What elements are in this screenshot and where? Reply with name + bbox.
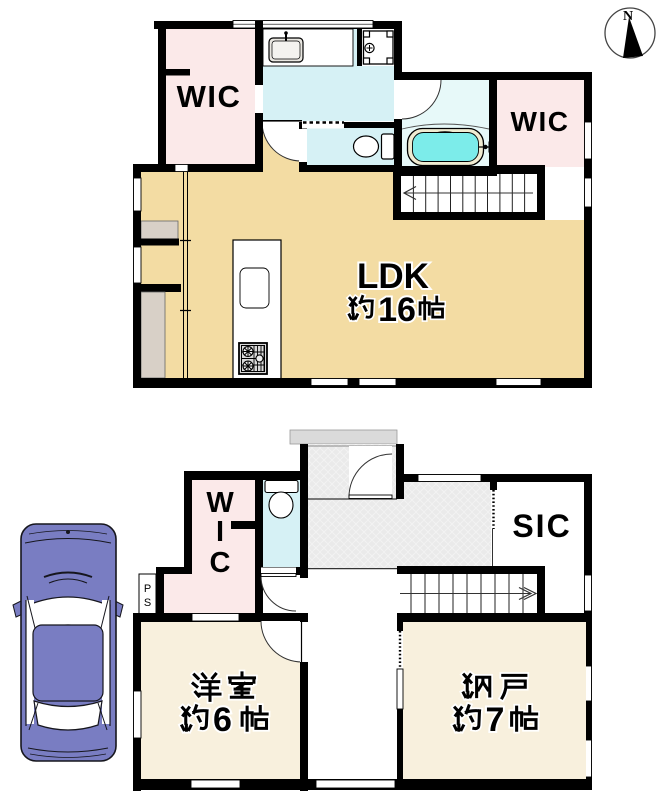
svg-text:I: I	[216, 516, 224, 548]
svg-text:N: N	[623, 9, 633, 24]
svg-text:WIC: WIC	[177, 79, 242, 114]
svg-text:S: S	[144, 597, 151, 609]
svg-text:WIC: WIC	[511, 106, 570, 137]
svg-text:C: C	[210, 547, 231, 579]
svg-text:P: P	[144, 583, 151, 595]
svg-text:7: 7	[486, 701, 505, 739]
svg-text:6: 6	[213, 701, 232, 739]
svg-text:16: 16	[378, 291, 416, 329]
svg-text:SIC: SIC	[512, 508, 571, 544]
svg-text:W: W	[206, 487, 234, 519]
